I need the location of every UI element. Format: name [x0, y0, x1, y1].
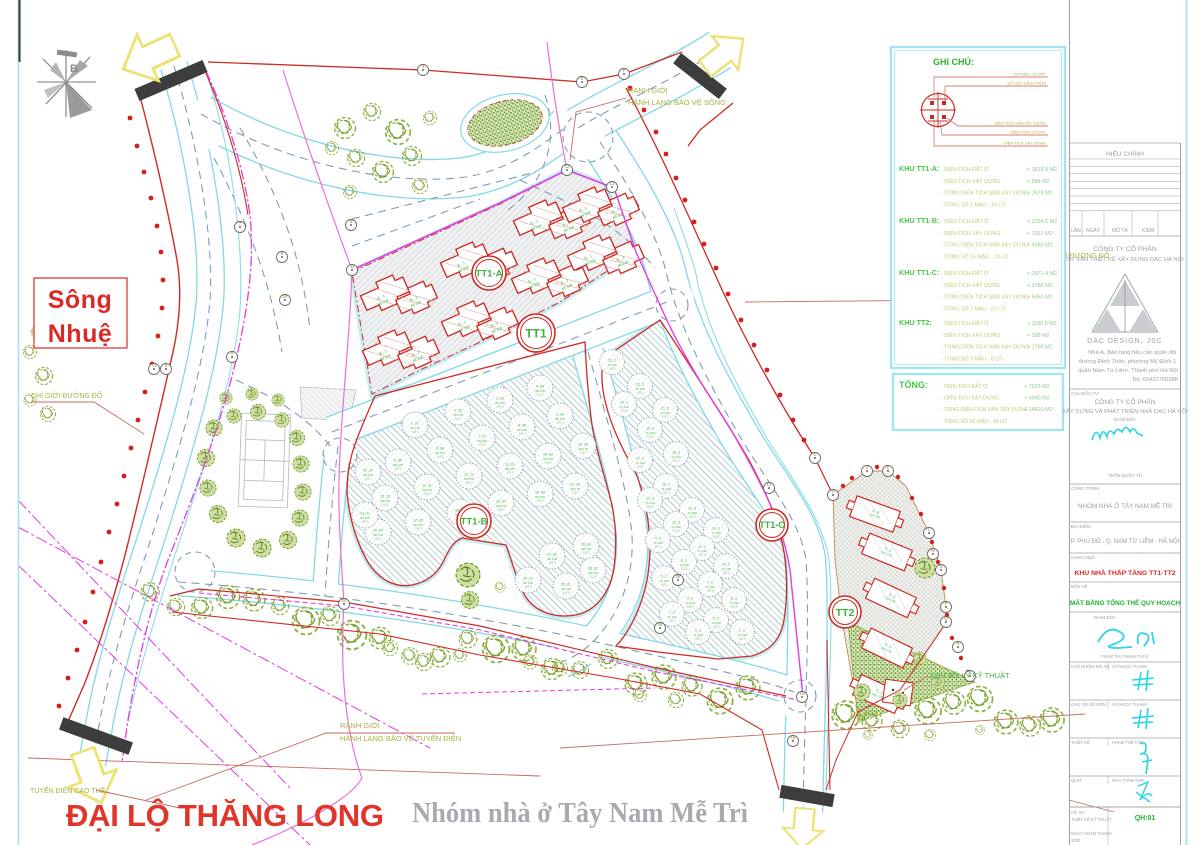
svg-text:PHẠM THỊ THANH THỦY: PHẠM THỊ THANH THỦY [1101, 654, 1149, 659]
svg-text:TT1-C: TT1-C [759, 520, 785, 530]
svg-text:- TỔNG DIỆN TÍCH SÀN XÂY DỰNG: - TỔNG DIỆN TÍCH SÀN XÂY DỰNG [941, 241, 1029, 249]
svg-text:26: 26 [658, 622, 663, 627]
svg-text:- TỔNG DIỆN TÍCH SÀN XÂY DỰNG: - TỔNG DIỆN TÍCH SÀN XÂY DỰNG [941, 405, 1028, 413]
svg-text:102.5: 102.5 [681, 567, 688, 571]
svg-text:+ 7923 M2: + 7923 M2 [1024, 384, 1050, 390]
svg-text:- TỔNG SỐ 15 MẪU - 23 LÔ: - TỔNG SỐ 15 MẪU - 23 LÔ [941, 253, 1008, 260]
svg-text:102.5: 102.5 [637, 391, 644, 395]
svg-text:- TỔNG SỐ 7 MẪU - 23 LÔ: - TỔNG SỐ 7 MẪU - 23 LÔ [941, 305, 1005, 312]
svg-text:SỐ LIỆU ĐIỀU THỪA: SỐ LIỆU ĐIỀU THỪA [1007, 81, 1046, 86]
svg-text:102.5: 102.5 [525, 585, 532, 589]
svg-text:HẠNG MỤC: HẠNG MỤC [1071, 555, 1096, 560]
svg-text:KIỂM: KIỂM [1142, 227, 1154, 234]
svg-text:H: H [831, 489, 834, 494]
svg-text:+ 2678 M2: + 2678 M2 [1027, 191, 1053, 197]
svg-text:102.5: 102.5 [661, 583, 668, 587]
svg-text:10: 10 [283, 294, 288, 299]
svg-text:102.5: 102.5 [637, 465, 644, 469]
svg-text:KHU XỬ LÝ KỸ THUẬT: KHU XỬ LÝ KỸ THUẬT [930, 671, 1010, 680]
svg-text:THIẾT KẾ KỸ THUẬT: THIẾT KẾ KỸ THUẬT [1071, 817, 1112, 822]
svg-text:102.5: 102.5 [563, 591, 570, 595]
svg-text:HÀNH LANG BẢO VỆ SÔNG: HÀNH LANG BẢO VỆ SÔNG [628, 98, 726, 107]
svg-text:102.5: 102.5 [572, 491, 579, 495]
svg-text:- TỔNG DIỆN TÍCH SÀN XÂY DỰNG: - TỔNG DIỆN TÍCH SÀN XÂY DỰNG [941, 343, 1029, 351]
svg-text:Nhà A, Bảo tàng hậu cần quân đ: Nhà A, Bảo tàng hậu cần quân đội, [1088, 350, 1178, 356]
svg-text:+ 14820 M2: + 14820 M2 [1024, 407, 1053, 413]
svg-text:+ 1661 M2: + 1661 M2 [1027, 231, 1053, 237]
svg-text:TT2: TT2 [836, 607, 855, 619]
svg-text:102.5: 102.5 [609, 367, 616, 371]
svg-text:+ 1818.8 M2: + 1818.8 M2 [1027, 167, 1057, 173]
svg-text:102.5: 102.5 [365, 477, 372, 481]
svg-text:G: G [813, 452, 816, 457]
svg-text:CHỦ NHIỆM ĐỒ ÁN: CHỦ NHIỆM ĐỒ ÁN [1071, 664, 1109, 669]
svg-text:PHẠM THẾ TẤN: PHẠM THẾ TẤN [1112, 740, 1143, 745]
svg-text:MÔ TẢ: MÔ TẢ [1112, 227, 1128, 234]
svg-text:TRẦN QUỐC TH: TRẦN QUỐC TH [1108, 472, 1142, 478]
svg-text:HỨA THẮM ANH: HỨA THẮM ANH [1112, 778, 1144, 783]
svg-text:- TỔNG SỐ 1 MẪU - 13 LÔ: - TỔNG SỐ 1 MẪU - 13 LÔ [941, 201, 1005, 208]
svg-text:- DIỆN TÍCH XÂY DỰNG: - DIỆN TÍCH XÂY DỰNG [941, 281, 1000, 289]
svg-text:- TỔNG SỐ 26 MẪU - 49 LÔ: - TỔNG SỐ 26 MẪU - 49 LÔ [941, 418, 1007, 425]
svg-text:DIỆN TÍCH XÂY DỰNG: DIỆN TÍCH XÂY DỰNG [1004, 141, 1046, 146]
svg-text:KHU TT1-B:: KHU TT1-B: [899, 216, 939, 225]
svg-text:Tel: 02437765388: Tel: 02437765388 [1132, 377, 1178, 383]
svg-text:TT1-A: TT1-A [476, 268, 503, 279]
svg-text:BẢN VẼ: BẢN VẼ [1071, 583, 1088, 589]
svg-text:2020: 2020 [1071, 838, 1081, 843]
svg-text:102.5: 102.5 [669, 619, 676, 623]
svg-text:KHU TT1-A:: KHU TT1-A: [899, 164, 939, 173]
svg-text:102.5: 102.5 [647, 505, 654, 509]
svg-text:R: R [956, 641, 959, 646]
svg-text:- TỔNG SỐ 3 MẪU - 8 LÔ: - TỔNG SỐ 3 MẪU - 8 LÔ [941, 355, 1002, 362]
svg-text:+ 1796 M2: + 1796 M2 [1027, 345, 1053, 351]
svg-text:KHU TT2:: KHU TT2: [899, 318, 932, 327]
svg-text:- TỔNG DIỆN TÍCH SÀN XÂY DỰNG: - TỔNG DIỆN TÍCH SÀN XÂY DỰNG [941, 293, 1029, 301]
svg-text:102.5: 102.5 [647, 435, 654, 439]
svg-text:102.5: 102.5 [723, 571, 730, 575]
svg-text:QH:01: QH:01 [1135, 815, 1156, 822]
svg-text:Nhuệ: Nhuệ [48, 320, 113, 348]
svg-text:J: J [866, 465, 868, 470]
svg-text:GIÁM ĐỐC: GIÁM ĐỐC [1094, 614, 1118, 620]
svg-text:P. PHÚ ĐÔ - Q. NAM TỪ LIÊM - H: P. PHÚ ĐÔ - Q. NAM TỪ LIÊM - HÀ NỘI [1071, 537, 1180, 545]
svg-text:+ 4940 M2: + 4940 M2 [1024, 396, 1050, 402]
svg-text:HÀNH LANG BẢO VỆ TUYẾN ĐIỆN: HÀNH LANG BẢO VỆ TUYẾN ĐIỆN [340, 733, 461, 743]
svg-text:102.5: 102.5 [695, 637, 702, 641]
svg-text:102.5: 102.5 [497, 405, 504, 409]
svg-text:13: 13 [610, 181, 615, 186]
svg-text:102.5: 102.5 [590, 575, 597, 579]
svg-text:+ 4983 M2: + 4983 M2 [1027, 243, 1053, 249]
svg-text:P: P [945, 601, 948, 606]
svg-text:102.5: 102.5 [362, 520, 369, 524]
svg-text:đường Đình Thôn, phường Mỹ Đìn: đường Đình Thôn, phường Mỹ Đình 1, [1079, 359, 1179, 365]
svg-text:102.5: 102.5 [663, 491, 670, 495]
svg-text:102.5: 102.5 [557, 421, 564, 425]
svg-text:102.5: 102.5 [583, 551, 590, 555]
svg-text:TT1-B: TT1-B [461, 516, 488, 527]
svg-text:102.5: 102.5 [545, 461, 552, 465]
svg-text:- DIỆN TÍCH XÂY DỰNG: - DIỆN TÍCH XÂY DỰNG [941, 331, 1000, 339]
svg-text:14: 14 [767, 482, 772, 487]
svg-text:TƯ VẤN THIẾT KẾ XÂY DỰNG DAC H: TƯ VẤN THIẾT KẾ XÂY DỰNG DAC HÀ NỘI [1066, 256, 1184, 263]
svg-text:102.5: 102.5 [395, 467, 402, 471]
svg-text:102.5: 102.5 [731, 605, 738, 609]
svg-text:+ 398 M2: + 398 M2 [1027, 333, 1050, 339]
svg-text:- DIỆN TÍCH XÂY DỰNG: - DIỆN TÍCH XÂY DỰNG [941, 177, 1000, 185]
svg-text:F: F [623, 68, 626, 73]
svg-text:25: 25 [676, 574, 681, 579]
svg-text:VŨ NGỌC THANH: VŨ NGỌC THANH [1112, 664, 1147, 669]
svg-text:DAC DESIGN, JSC: DAC DESIGN, JSC [1087, 338, 1163, 345]
svg-text:E: E [581, 76, 584, 81]
svg-text:- TỔNG DIỆN TÍCH SÀN XÂY DỰNG: - TỔNG DIỆN TÍCH SÀN XÂY DỰNG [941, 189, 1029, 197]
svg-text:+ 2354.5 M2: + 2354.5 M2 [1027, 219, 1057, 225]
svg-text:ĐẠI LỘ THĂNG LONG: ĐẠI LỘ THĂNG LONG [66, 797, 384, 833]
svg-text:- DIỆN TÍCH ĐẤT Ở: - DIỆN TÍCH ĐẤT Ở [941, 269, 989, 277]
svg-text:- DIỆN TÍCH ĐẤT Ở: - DIỆN TÍCH ĐẤT Ở [941, 165, 989, 173]
svg-text:MẶT BẰNG TỔNG THỂ QUY HOẠCH: MẶT BẰNG TỔNG THỂ QUY HOẠCH [1070, 598, 1180, 607]
svg-text:Sông: Sông [48, 286, 113, 314]
svg-text:102.5: 102.5 [673, 459, 680, 463]
svg-text:+ 884 M2: + 884 M2 [1027, 179, 1050, 185]
svg-text:102.5: 102.5 [507, 471, 514, 475]
svg-text:102.5: 102.5 [549, 561, 556, 565]
svg-text:ĐỊA ĐIỂM: ĐỊA ĐIỂM [1071, 523, 1091, 529]
svg-text:- DIỆN TÍCH ĐẤT Ở: - DIỆN TÍCH ĐẤT Ở [941, 382, 988, 390]
svg-text:TT1: TT1 [525, 326, 547, 340]
svg-text:+ 2571.4 M2: + 2571.4 M2 [1027, 271, 1057, 277]
svg-text:K: K [887, 465, 890, 470]
svg-text:HỒ SƠ: HỒ SƠ [1071, 810, 1085, 815]
svg-text:102.5: 102.5 [498, 508, 505, 512]
svg-text:GHI CHÚ:: GHI CHÚ: [933, 56, 974, 67]
svg-text:- DIỆN TÍCH ĐẤT Ở: - DIỆN TÍCH ĐẤT Ở [941, 217, 989, 225]
svg-text:16: 16 [791, 735, 796, 740]
svg-text:THIẾT KẾ: THIẾT KẾ [1071, 740, 1090, 745]
svg-text:+ 5363 M2: + 5363 M2 [1027, 295, 1053, 301]
svg-text:12: 12 [565, 164, 570, 169]
svg-text:24: 24 [342, 598, 347, 603]
svg-text:11: 11 [350, 264, 355, 269]
svg-text:102.5: 102.5 [537, 499, 544, 503]
svg-text:B: B [70, 63, 78, 75]
svg-text:DIỆN TÍCH LÔ ĐẤT: DIỆN TÍCH LÔ ĐẤT [1011, 130, 1047, 135]
svg-text:RANH GIỚI: RANH GIỚI [340, 721, 380, 730]
svg-text:102.5: 102.5 [455, 417, 462, 421]
svg-text:Nhóm nhà ở Tây Nam Mễ Trì: Nhóm nhà ở Tây Nam Mễ Trì [412, 798, 748, 829]
svg-text:102.5: 102.5 [437, 455, 444, 459]
svg-text:102.5: 102.5 [673, 529, 680, 533]
svg-text:102.5: 102.5 [707, 589, 714, 593]
svg-text:TỔNG:: TỔNG: [899, 379, 928, 390]
svg-text:15: 15 [800, 691, 805, 696]
svg-text:102.5: 102.5 [537, 393, 544, 397]
svg-text:102.5: 102.5 [621, 409, 628, 413]
svg-text:NHÓM NHÀ Ở TÂY NAM MỄ TRÌ: NHÓM NHÀ Ở TÂY NAM MỄ TRÌ [1078, 501, 1172, 510]
svg-text:HIỆU CHỈNH: HIỆU CHỈNH [1106, 149, 1144, 158]
svg-text:102.5: 102.5 [662, 415, 669, 419]
svg-text:NGÀY HOÀN THÀNH: NGÀY HOÀN THÀNH [1071, 831, 1112, 836]
svg-text:+ 1788 M2: + 1788 M2 [1027, 283, 1053, 289]
svg-text:DIỆN TÍCH SÀN XÂY DỰNG: DIỆN TÍCH SÀN XÂY DỰNG [994, 121, 1046, 126]
svg-text:102.5: 102.5 [713, 625, 720, 629]
svg-text:NGÀY: NGÀY [1086, 227, 1101, 234]
svg-text:102.5: 102.5 [519, 432, 526, 436]
svg-text:CHỦ ĐẦU TƯ: CHỦ ĐẦU TƯ [1071, 390, 1099, 396]
svg-text:102.5: 102.5 [466, 481, 473, 485]
svg-text:102.5: 102.5 [713, 535, 720, 539]
svg-text:102.5: 102.5 [689, 515, 696, 519]
svg-text:- DIỆN TÍCH XÂY DỰNG: - DIỆN TÍCH XÂY DỰNG [941, 394, 999, 402]
svg-text:CHỦ TRÌ BỘ MÔN: CHỦ TRÌ BỘ MÔN [1071, 702, 1106, 707]
svg-text:102.5: 102.5 [655, 545, 662, 549]
svg-text:RANH GIỚI: RANH GIỚI [628, 86, 668, 95]
svg-text:102.5: 102.5 [424, 492, 431, 496]
svg-text:N: N [939, 564, 942, 569]
svg-text:102.5: 102.5 [687, 605, 694, 609]
svg-text:KHU TT1-C:: KHU TT1-C: [899, 268, 939, 277]
svg-text:M: M [931, 548, 935, 553]
svg-text:102.5: 102.5 [580, 451, 587, 455]
svg-text:- DIỆN TÍCH XÂY DỰNG: - DIỆN TÍCH XÂY DỰNG [941, 229, 1000, 237]
svg-text:VŨ NGỌC THANH: VŨ NGỌC THANH [1112, 702, 1147, 707]
svg-text:102.5: 102.5 [415, 527, 422, 531]
svg-text:CÔNG TRÌNH: CÔNG TRÌNH [1071, 485, 1099, 491]
svg-text:102.5: 102.5 [375, 537, 382, 541]
svg-text:QLKT: QLKT [1071, 778, 1082, 783]
svg-text:102.5: 102.5 [479, 443, 486, 447]
svg-text:102.5: 102.5 [412, 430, 419, 434]
svg-text:+ 1180.5 M2: + 1180.5 M2 [1027, 321, 1057, 327]
svg-text:LẦN: LẦN [1071, 227, 1081, 234]
svg-text:- DIỆN TÍCH ĐẤT Ở: - DIỆN TÍCH ĐẤT Ở [941, 319, 989, 327]
svg-text:CHỈ GIỚI ĐƯỜNG ĐỎ: CHỈ GIỚI ĐƯỜNG ĐỎ [31, 391, 103, 400]
svg-text:GIÁM ĐỐC: GIÁM ĐỐC [1114, 416, 1138, 422]
svg-text:XÂY DỰNG VÀ PHÁT TRIỂN NHÀ DAC: XÂY DỰNG VÀ PHÁT TRIỂN NHÀ DAC HÀ NỘI [1062, 408, 1188, 415]
svg-text:102.5: 102.5 [699, 553, 706, 557]
svg-text:102.5: 102.5 [382, 503, 389, 507]
svg-text:SỐ HIỆU LÔ ĐẤT: SỐ HIỆU LÔ ĐẤT [1014, 72, 1047, 77]
svg-text:102.5: 102.5 [739, 637, 746, 641]
svg-text:A1: A1 [151, 363, 157, 368]
svg-text:quận Nam Từ Liêm, Thành phố Hà: quận Nam Từ Liêm, Thành phố Hà Nội [1078, 368, 1178, 374]
